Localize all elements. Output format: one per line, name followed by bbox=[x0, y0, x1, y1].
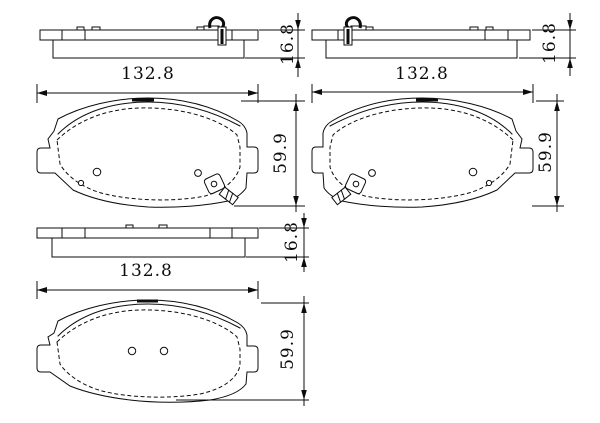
rivet-hole-small bbox=[78, 180, 83, 185]
dimension-thickness-top-left: 16.8 bbox=[245, 13, 305, 77]
rivet-hole bbox=[160, 347, 167, 354]
edge-view-top-right-mirrored bbox=[312, 18, 530, 58]
shim-tab bbox=[77, 27, 84, 30]
wear-indicator-base bbox=[204, 26, 219, 30]
shim-tab bbox=[159, 225, 167, 228]
dim-label-width: 132.8 bbox=[121, 64, 175, 84]
rivet-hole bbox=[93, 168, 101, 176]
drawing-svg: 132.8 16.8 59.9 132.8 16.8 59.9 132.8 16… bbox=[0, 0, 600, 423]
dimension-thickness-top-right: 16.8 bbox=[519, 13, 576, 76]
rivet-hole bbox=[128, 347, 135, 354]
face-view-bottom bbox=[37, 300, 258, 402]
dimension-width-bottom: 132.8 bbox=[37, 261, 258, 299]
shim-tab bbox=[126, 225, 133, 228]
friction-block bbox=[53, 40, 244, 58]
edge-view-bottom bbox=[37, 225, 258, 257]
friction-block bbox=[52, 238, 245, 257]
edge-view-top-left bbox=[40, 18, 258, 58]
dimension-thickness-bottom: 16.8 bbox=[246, 213, 309, 272]
dim-label-width: 132.8 bbox=[119, 261, 173, 281]
face-view-middle-left bbox=[37, 98, 258, 207]
dim-label-width: 132.8 bbox=[395, 64, 449, 84]
dim-label-height: 59.9 bbox=[278, 328, 298, 370]
dimension-height-middle-right: 59.9 bbox=[532, 94, 564, 212]
brake-pad-technical-drawing: 132.8 16.8 59.9 132.8 16.8 59.9 132.8 16… bbox=[0, 0, 600, 423]
dimension-width-top-left: 132.8 bbox=[37, 64, 258, 103]
dim-label-height: 59.9 bbox=[536, 131, 556, 173]
shim-tab bbox=[92, 27, 100, 30]
backplate-strip bbox=[37, 228, 258, 238]
dim-label-height: 59.9 bbox=[271, 132, 291, 174]
rivet-hole bbox=[195, 170, 202, 177]
pad-outline bbox=[37, 300, 258, 402]
face-view-middle-right-mirrored bbox=[312, 98, 533, 207]
dim-label-thickness: 16.8 bbox=[540, 22, 560, 64]
dim-label-thickness: 16.8 bbox=[278, 23, 298, 65]
dim-label-thickness: 16.8 bbox=[282, 221, 302, 263]
dimension-width-top-right: 132.8 bbox=[312, 64, 533, 103]
